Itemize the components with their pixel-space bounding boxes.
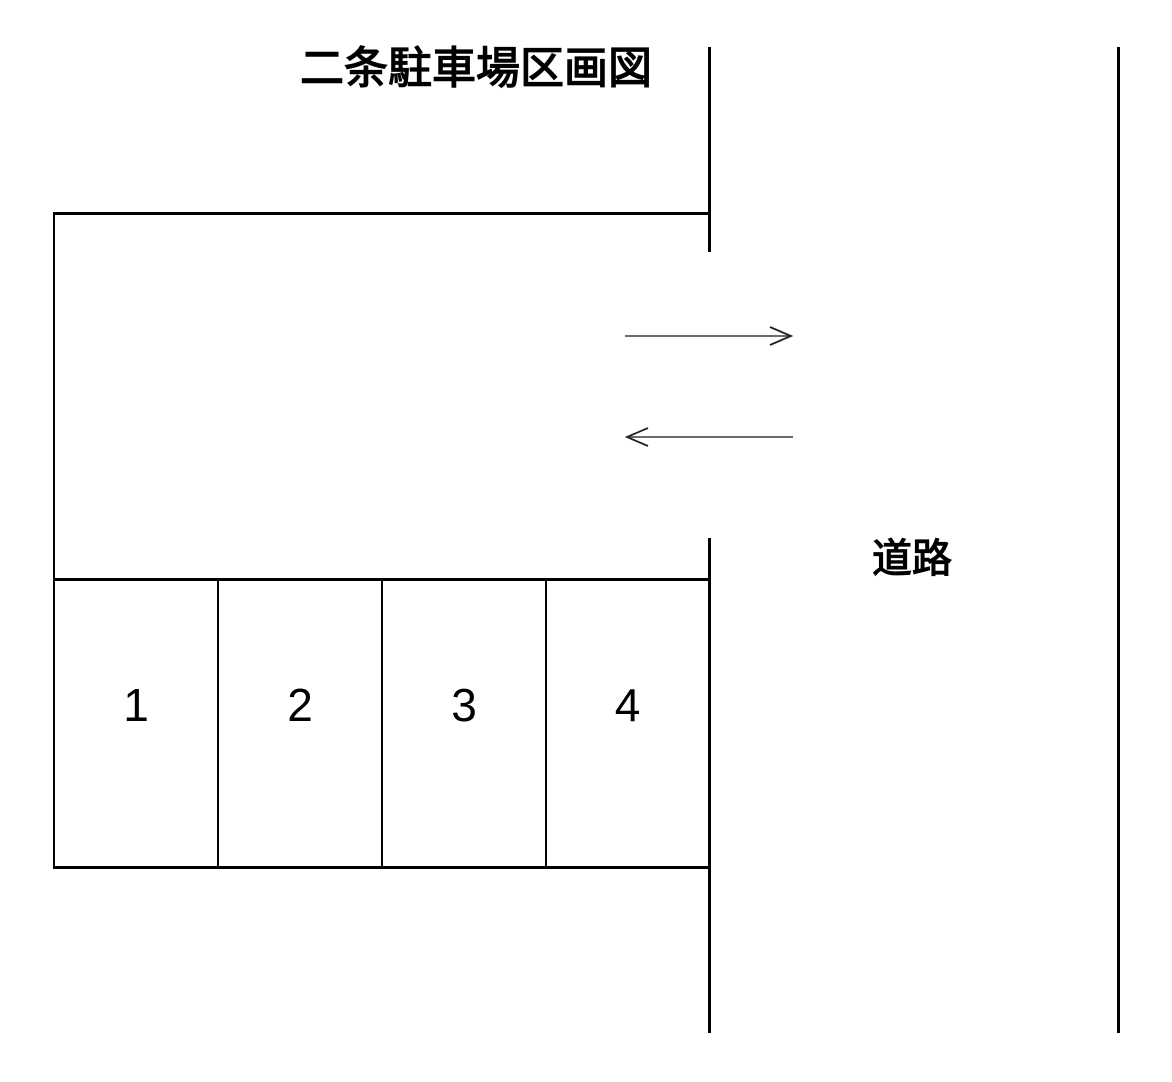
parking-space-4: 4	[547, 580, 708, 866]
space-number: 2	[287, 678, 313, 732]
arrow-right-icon	[624, 324, 794, 348]
lot-top-wall	[53, 212, 711, 215]
diagram-title: 二条駐車場区画図	[300, 42, 660, 96]
space-number: 1	[123, 678, 149, 732]
arrow-left-icon	[624, 425, 794, 449]
road-label: 道路	[872, 534, 952, 584]
parking-space-1: 1	[55, 580, 217, 866]
road-near-edge-line-upper	[708, 47, 711, 252]
space-number: 4	[615, 678, 641, 732]
parking-layout-diagram: 二条駐車場区画図 1 2 3 4 道路	[0, 0, 1172, 1082]
space-number: 3	[451, 678, 477, 732]
parking-space-2: 2	[219, 580, 381, 866]
road-near-edge-line-lower	[708, 538, 711, 1033]
road-far-edge-line	[1117, 47, 1120, 1033]
parking-space-3: 3	[383, 580, 545, 866]
